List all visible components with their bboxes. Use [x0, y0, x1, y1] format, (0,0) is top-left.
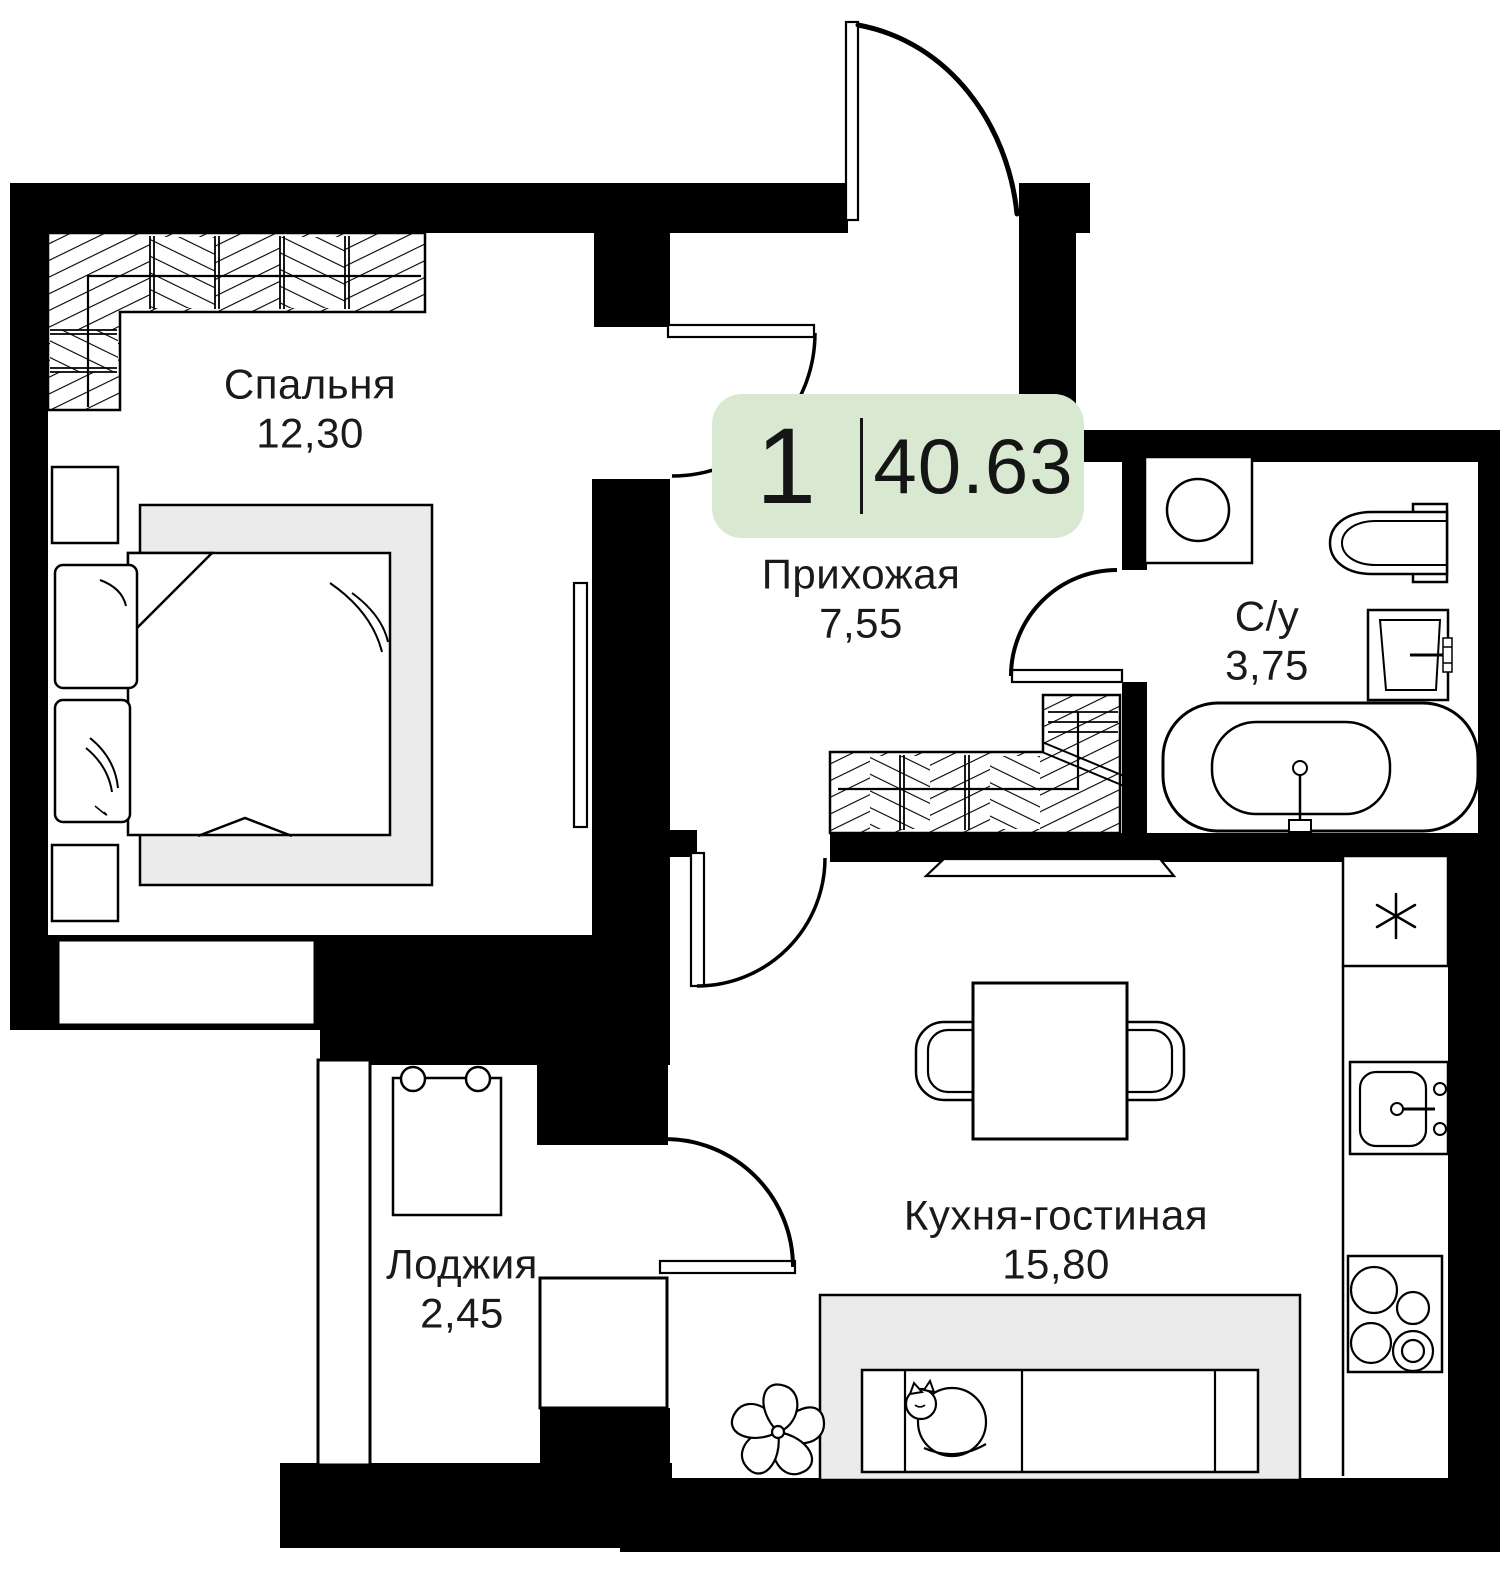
floor-plan: 1 40.63 Спальня 12,30 Прихожая 7,55 С/у …	[0, 0, 1500, 1569]
wall	[594, 233, 670, 327]
room-name: Лоджия	[386, 1240, 538, 1289]
fridge	[1343, 856, 1448, 966]
toilet	[1330, 504, 1447, 582]
bathroom-door	[1011, 570, 1122, 682]
wall	[1019, 183, 1090, 233]
balcony-door-leaf	[660, 1261, 795, 1273]
wall	[1122, 682, 1147, 833]
washing-machine	[1145, 457, 1252, 563]
plant-icon	[726, 1381, 824, 1480]
kitchen-door-leaf	[691, 853, 704, 986]
wall	[1122, 460, 1147, 570]
wall	[10, 183, 848, 233]
wall	[620, 1478, 1500, 1552]
bathroom-sink	[1368, 610, 1452, 700]
sofa	[820, 1295, 1300, 1480]
drying-rack	[393, 1067, 501, 1215]
balcony-door	[660, 1139, 795, 1273]
kitchen-counter-bar	[926, 859, 1174, 876]
bedroom-door-leaf	[668, 325, 814, 337]
room-label-bedroom: Спальня 12,30	[224, 360, 396, 457]
nightstand	[52, 845, 118, 921]
bathroom-door-leaf	[1012, 670, 1122, 682]
kitchen-door	[691, 853, 825, 986]
pillow	[55, 565, 137, 688]
wall	[10, 233, 48, 1030]
total-area: 40.63	[863, 427, 1084, 505]
room-label-bathroom: С/у 3,75	[1225, 592, 1309, 689]
room-area: 15,80	[904, 1240, 1208, 1289]
bathroom-door-arc	[1011, 570, 1117, 676]
kitchen-sink	[1350, 1062, 1448, 1154]
wall	[1478, 430, 1500, 882]
nightstand	[52, 467, 118, 543]
room-name: Прихожая	[762, 550, 961, 599]
area-badge: 1 40.63	[712, 394, 1084, 538]
rooms-count: 1	[712, 412, 860, 520]
room-label-loggia: Лоджия 2,45	[386, 1240, 538, 1337]
entry-door	[846, 22, 1017, 220]
room-area: 2,45	[386, 1289, 538, 1338]
wall	[592, 479, 670, 935]
room-name: Кухня-гостиная	[904, 1191, 1208, 1240]
wall	[320, 935, 670, 1065]
entry-door-arc	[858, 25, 1017, 214]
room-area: 3,75	[1225, 641, 1309, 690]
bedroom-loggia-window	[58, 940, 315, 1025]
room-name: С/у	[1225, 592, 1309, 641]
dining-set	[916, 983, 1184, 1139]
bathtub	[1163, 703, 1478, 832]
bed	[52, 467, 432, 921]
balcony-window	[540, 1278, 667, 1408]
wall	[537, 1063, 668, 1145]
kitchen-door-arc	[697, 858, 825, 986]
loggia-side-wall	[318, 1060, 370, 1465]
tv	[574, 583, 587, 827]
dining-table	[973, 983, 1127, 1139]
stove	[1348, 1256, 1442, 1372]
hallway-closet	[830, 695, 1124, 833]
room-label-kitchen-living: Кухня-гостиная 15,80	[904, 1191, 1208, 1288]
pillow	[55, 700, 130, 822]
balcony-door-arc	[665, 1139, 793, 1267]
wall	[1065, 430, 1480, 462]
room-label-hallway: Прихожая 7,55	[762, 550, 961, 647]
floor-plan-drawing	[0, 0, 1500, 1569]
room-area: 12,30	[224, 409, 396, 458]
room-name: Спальня	[224, 360, 396, 409]
wall	[540, 1408, 670, 1483]
room-area: 7,55	[762, 599, 961, 648]
entry-door-leaf	[846, 22, 858, 220]
wall	[1448, 852, 1500, 1552]
